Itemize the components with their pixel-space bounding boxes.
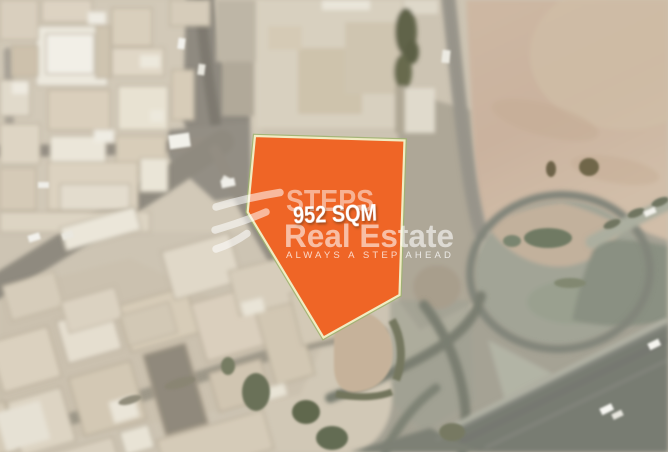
svg-text:952 SQM: 952 SQM	[293, 200, 378, 230]
svg-text:ALWAYS A STEP AHEAD: ALWAYS A STEP AHEAD	[286, 250, 454, 260]
